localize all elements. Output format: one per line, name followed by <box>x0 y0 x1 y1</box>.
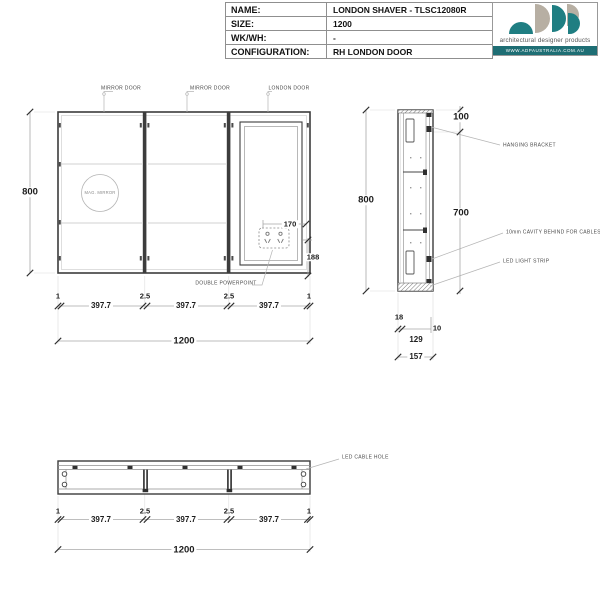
plan-label-cable: LED CABLE HOLE <box>342 456 389 461</box>
front-dim-seg-3: 397.7 <box>257 302 281 310</box>
double-powerpoint-symbol <box>259 228 289 248</box>
side-dim-gap: 10 <box>433 324 441 332</box>
title-label-configuration: CONFIGURATION: <box>226 45 327 58</box>
hinge-left-bottom <box>62 482 67 487</box>
title-block: NAME: LONDON SHAVER - TLSC12080R SIZE: 1… <box>225 2 493 59</box>
front-door-label-2: MIRROR DOOR <box>190 87 230 92</box>
logo-shape-a <box>509 22 533 34</box>
front-door-label-1: MIRROR DOOR <box>101 87 141 92</box>
front-dim-powerpoint-h: 170 <box>282 220 299 228</box>
logo-shape-d <box>535 4 550 33</box>
front-dim-gap-3: 2.5 <box>224 292 234 300</box>
side-label-cavity: 10mm CAVITY BEHIND FOR CABLES <box>506 231 600 236</box>
logo-website: WWW.ADPAUSTRALIA.COM.AU <box>493 46 597 55</box>
plan-dim-gap-2: 2.5 <box>140 507 150 515</box>
plan-dim-seg-2: 397.7 <box>174 516 198 524</box>
plan-dim-gap-4: 1 <box>307 507 311 515</box>
adp-logo-icon <box>509 4 581 34</box>
front-dim-gap-2: 2.5 <box>140 292 150 300</box>
side-label-led: LED LIGHT STRIP <box>503 260 549 265</box>
hanging-bracket-cutout-top <box>406 119 414 142</box>
drawing-sheet: NAME: LONDON SHAVER - TLSC12080R SIZE: 1… <box>0 0 600 600</box>
title-row-wkwh: WK/WH: - <box>226 31 492 45</box>
title-label-wkwh: WK/WH: <box>226 31 327 44</box>
side-section-linework <box>366 106 503 360</box>
side-dim-total-depth: 157 <box>407 353 424 361</box>
front-dim-gap-1: 1 <box>56 292 60 300</box>
title-row-configuration: CONFIGURATION: RH LONDON DOOR <box>226 45 492 58</box>
plan-dim-gap-3: 2.5 <box>224 507 234 515</box>
mag-mirror-label: MAG. MIRROR <box>84 191 115 195</box>
side-dim-top-offset: 100 <box>451 112 471 122</box>
title-value-wkwh: - <box>327 31 492 44</box>
door-divider-2 <box>227 112 231 273</box>
front-powerpoint-label: DOUBLE POWERPOINT <box>195 282 256 287</box>
plan-view-linework <box>58 459 339 552</box>
plan-dim-gap-1: 1 <box>56 507 60 515</box>
title-row-name: NAME: LONDON SHAVER - TLSC12080R <box>226 3 492 17</box>
title-label-size: SIZE: <box>226 17 327 30</box>
hinge-left-top <box>62 472 67 477</box>
front-door-label-3: LONDON DOOR <box>268 87 309 92</box>
hinge-right-top <box>301 472 306 477</box>
title-label-name: NAME: <box>226 3 327 16</box>
plan-dim-seg-1: 397.7 <box>89 516 113 524</box>
logo-tagline: architectural designer products <box>500 37 591 44</box>
plan-dim-total: 1200 <box>171 545 196 555</box>
title-value-configuration: RH LONDON DOOR <box>327 45 492 58</box>
front-dim-gap-4: 1 <box>307 292 311 300</box>
front-dim-height: 800 <box>20 187 40 197</box>
side-dim-door: 18 <box>395 313 403 321</box>
title-value-size: 1200 <box>327 17 492 30</box>
hanging-bracket-cutout-bottom <box>406 251 414 274</box>
plan-dim-seg-3: 397.7 <box>257 516 281 524</box>
front-dim-seg-1: 397.7 <box>89 302 113 310</box>
side-dim-height: 800 <box>356 195 376 205</box>
side-dim-body-depth: 129 <box>409 336 422 344</box>
title-value-name: LONDON SHAVER - TLSC12080R <box>327 3 492 16</box>
side-label-bracket: HANGING BRACKET <box>503 144 556 149</box>
front-dim-total: 1200 <box>171 336 196 346</box>
door-divider-1 <box>143 112 147 273</box>
adp-logo: architectural designer products WWW.ADPA… <box>492 2 598 56</box>
front-dim-seg-2: 397.7 <box>174 302 198 310</box>
logo-shape-p <box>552 5 566 32</box>
title-row-size: SIZE: 1200 <box>226 17 492 31</box>
front-dim-powerpoint-v: 188 <box>305 253 322 261</box>
hinge-right-bottom <box>301 482 306 487</box>
side-dim-body: 700 <box>451 208 471 218</box>
